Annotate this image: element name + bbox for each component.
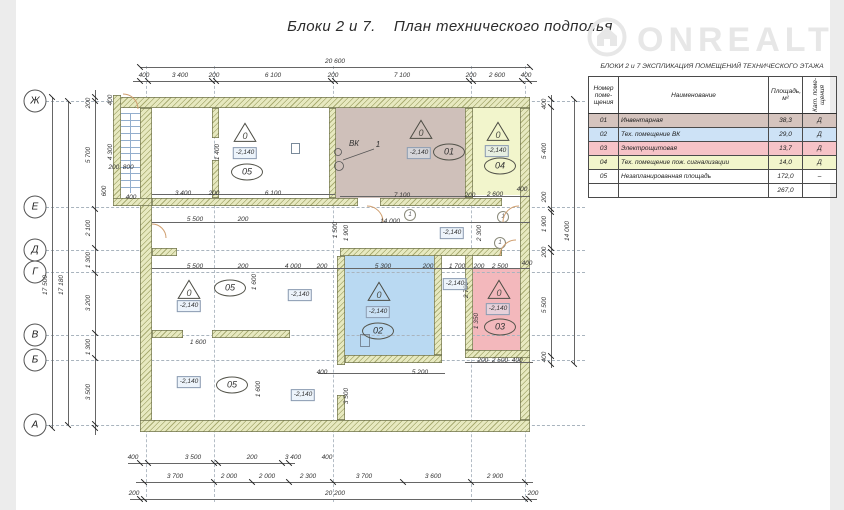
dimension-label: 1 500	[333, 222, 340, 238]
dimension-label: 400	[317, 370, 328, 377]
axis-circle-Ж: Ж	[24, 90, 47, 113]
explication-row-05: 05Незапланированная площадь172,0–	[589, 170, 837, 184]
svg-text:0: 0	[496, 288, 501, 298]
dimension-line	[128, 463, 295, 464]
dimension-label: ВК	[349, 140, 359, 148]
dimension-label: 7 100	[394, 73, 410, 80]
room-name-cell: Тех. помещение пож. сигнализации	[619, 156, 769, 170]
dimension-label: 3 700	[356, 474, 372, 481]
wall-segment	[152, 198, 358, 206]
wall-segment	[113, 97, 530, 108]
dimension-label: 14 000	[565, 221, 572, 241]
wall-segment	[140, 420, 530, 432]
dimension-label: 200	[86, 98, 93, 109]
dimension-label: 1 350	[474, 313, 481, 329]
dimension-label: 1 600	[256, 381, 263, 397]
dimension-line	[574, 99, 575, 364]
dimension-label: 5 500	[187, 217, 203, 224]
dimension-label: 5 400	[542, 143, 549, 159]
wall-segment	[152, 248, 177, 256]
dimension-label: 200	[209, 73, 220, 80]
wall-segment	[345, 355, 442, 363]
category-triangle: 0	[409, 119, 433, 140]
dimension-label: 200	[542, 192, 549, 203]
axis-circle-В: В	[24, 324, 47, 347]
category-triangle: 0	[233, 122, 257, 143]
dimension-label: 5 200	[412, 370, 428, 377]
room-number-tag: 04	[484, 158, 516, 175]
explication-title: БЛОКИ 2 и 7 ЭКСПЛИКАЦИЯ ПОМЕЩЕНИЙ ТЕХНИЧ…	[588, 63, 836, 70]
svg-text:0: 0	[376, 290, 381, 300]
axis-circle-Д: Д	[24, 239, 47, 262]
dimension-label: 200	[129, 491, 140, 498]
dimension-line	[52, 97, 53, 428]
dimension-label: 200	[474, 264, 485, 271]
level-mark: -2,140	[177, 300, 201, 312]
dimension-label: 2 300	[477, 225, 484, 241]
wall-segment	[465, 108, 473, 198]
door-tag: 1	[494, 237, 506, 249]
dimension-label: 200	[528, 491, 539, 498]
dimension-label: 4 300	[108, 144, 115, 160]
dimension-label: 400	[522, 261, 533, 268]
dimension-label: 5 700	[86, 147, 93, 163]
onrealt-logo-icon	[586, 16, 628, 63]
dimension-label: 400	[542, 352, 549, 363]
dimension-label: 3 400	[175, 191, 191, 198]
empty-cell	[803, 184, 837, 198]
level-mark: -2,140	[177, 376, 201, 388]
dimension-label: 600	[102, 186, 109, 197]
dimension-label: 3 200	[86, 295, 93, 311]
dimension-label: 200 2 500 400	[477, 358, 522, 365]
dimension-label: 2 100	[86, 220, 93, 236]
dimension-label: 200	[209, 191, 220, 198]
dimension-line	[140, 67, 530, 68]
dimension-label: 3 500	[185, 455, 201, 462]
dimension-label: 4 000	[285, 264, 301, 271]
level-mark: -2,140	[407, 147, 431, 159]
wall-segment	[212, 108, 219, 138]
dimension-label: 3 500	[86, 384, 93, 400]
room-number-tag: 01	[433, 144, 465, 161]
col-header-category: Кат. поме- щения	[803, 77, 837, 114]
dimension-label: 2 900	[487, 474, 503, 481]
dimension-line	[68, 101, 69, 425]
room-area-cell: 29,0	[769, 128, 803, 142]
room-area-cell: 13,7	[769, 142, 803, 156]
room-area-cell: 38,3	[769, 114, 803, 128]
level-mark: -2,140	[485, 145, 509, 157]
dimension-label: 3 400	[285, 455, 301, 462]
dimension-label: 2 000	[259, 474, 275, 481]
watermark-text: ONREALT	[637, 18, 834, 62]
dimension-line	[152, 222, 530, 223]
dimension-label: 200	[238, 217, 249, 224]
dimension-label: 1 300	[86, 252, 93, 268]
dimension-label: 200	[317, 264, 328, 271]
dimension-label: 5 300	[375, 264, 391, 271]
room-number-cell: 02	[589, 128, 619, 142]
dimension-label: 1 700	[449, 264, 465, 271]
dimension-label: 200 800	[108, 165, 133, 172]
level-mark: -2,140	[440, 227, 464, 239]
explication-row-01: 01Инвентарная38,3Д	[589, 114, 837, 128]
level-mark: -2,140	[291, 389, 315, 401]
dimension-label: 5 500	[542, 297, 549, 313]
category-triangle: 0	[487, 279, 511, 300]
room-number-tag: 05	[216, 377, 248, 394]
level-mark: -2,140	[233, 147, 257, 159]
dimension-label: 2 300	[300, 474, 316, 481]
dimension-label: 200	[542, 247, 549, 258]
dimension-line	[130, 499, 537, 500]
dimension-label: 1	[376, 141, 380, 149]
page-margin-left	[0, 0, 16, 510]
wall-segment	[465, 255, 473, 350]
dimension-line	[95, 90, 96, 435]
level-mark: -2,140	[366, 306, 390, 318]
svg-text:0: 0	[186, 288, 191, 298]
room-area-cell: 172,0	[769, 170, 803, 184]
category-triangle: 0	[367, 281, 391, 302]
dimension-label: 3 600	[425, 474, 441, 481]
axis-circle-Е: Е	[24, 196, 47, 219]
svg-text:0: 0	[495, 130, 500, 140]
dimension-label: 3 500	[344, 388, 351, 404]
room-number-cell: 04	[589, 156, 619, 170]
room-number-cell: 01	[589, 114, 619, 128]
room-number-tag: 05	[231, 164, 263, 181]
dimension-label: 17 180	[59, 275, 66, 295]
category-triangle: 0	[486, 121, 510, 142]
dimension-label: 2 000	[221, 474, 237, 481]
dimension-label: 2 600	[489, 73, 505, 80]
svg-text:0: 0	[242, 131, 247, 141]
wall-segment	[340, 248, 502, 256]
axis-line-Е	[46, 207, 585, 208]
dimension-label: 2 500	[492, 264, 508, 271]
axis-line-Д	[46, 250, 585, 251]
room-category-cell: –	[803, 170, 837, 184]
explication-row-03: 03Электрощитовая13,7Д	[589, 142, 837, 156]
total-area-cell: 267,0	[769, 184, 803, 198]
col-header-name: Наименование	[619, 77, 769, 114]
room-name-cell: Тех. помещение ВК	[619, 128, 769, 142]
explication-row-04: 04Тех. помещение пож. сигнализации14,0Д	[589, 156, 837, 170]
dimension-label: 200	[466, 73, 477, 80]
explication-total-row: 267,0	[589, 184, 837, 198]
room-category-cell: Д	[803, 114, 837, 128]
level-mark: -2,140	[486, 303, 510, 315]
floor-plan-sheet: Блоки 2 и 7. План технического подполья …	[0, 0, 844, 510]
dimension-label: 6 100	[265, 191, 281, 198]
dimension-label: 3 400	[172, 73, 188, 80]
level-mark: -2,140	[288, 289, 312, 301]
room-number-tag: 05	[214, 280, 246, 297]
dimension-label: 7 100	[394, 193, 410, 200]
level-mark: -2,140	[443, 278, 467, 290]
dimension-label: 200	[238, 264, 249, 271]
dimension-label: 1 300	[86, 339, 93, 355]
dimension-label: 5 500	[187, 264, 203, 271]
dimension-label: 1 600	[190, 340, 206, 347]
axis-circle-Б: Б	[24, 349, 47, 372]
dimension-label: 400	[128, 455, 139, 462]
room-category-cell: Д	[803, 156, 837, 170]
dimension-label: 200	[465, 193, 476, 200]
dimension-label: 400	[126, 195, 137, 202]
axis-line-Г	[46, 272, 585, 273]
dimension-label: 6 100	[265, 73, 281, 80]
stair-rail	[130, 113, 131, 193]
dimension-label: 400	[521, 73, 532, 80]
dimension-label: 1 600	[252, 274, 259, 290]
room-category-cell: Д	[803, 142, 837, 156]
dimension-label: 20 200	[325, 491, 345, 498]
dimension-label: 1 900	[344, 225, 351, 241]
dimension-label: 1 900	[542, 216, 549, 232]
door-arc	[152, 224, 166, 238]
category-triangle: 0	[177, 279, 201, 300]
watermark: ONREALT	[586, 16, 834, 63]
dimension-label: 200	[247, 455, 258, 462]
dimension-label: 200	[423, 264, 434, 271]
room-category-cell: Д	[803, 128, 837, 142]
dimension-label: 20 600	[325, 59, 345, 66]
empty-cell	[619, 184, 769, 198]
wall-segment	[212, 330, 290, 338]
dimension-label: 400	[322, 455, 333, 462]
dimension-label: 17 500	[43, 275, 50, 295]
room-name-cell: Инвентарная	[619, 114, 769, 128]
dimension-label: 2 600	[487, 192, 503, 199]
dimension-label: 200	[328, 73, 339, 80]
wall-segment	[152, 330, 183, 338]
room-number-cell: 05	[589, 170, 619, 184]
dimension-label: 400	[517, 187, 528, 194]
wall-segment	[140, 108, 152, 432]
room-number-tag: 02	[362, 323, 394, 340]
equipment-rect	[291, 143, 300, 154]
dimension-label: 400	[139, 73, 150, 80]
door-tag: 1	[404, 209, 416, 221]
wall-segment	[329, 108, 336, 198]
room-name-cell: Электрощитовая	[619, 142, 769, 156]
explication-table: Номер поме- щения Наименование Площадь, …	[588, 76, 837, 198]
col-header-area: Площадь, м²	[769, 77, 803, 114]
dimension-label: 3 700	[167, 474, 183, 481]
room-area-cell: 14,0	[769, 156, 803, 170]
explication-row-02: 02Тех. помещение ВК29,0Д	[589, 128, 837, 142]
dimension-label: 400	[542, 99, 549, 110]
wall-segment	[434, 255, 442, 355]
empty-cell	[589, 184, 619, 198]
wall-segment	[337, 256, 345, 365]
dimension-line	[551, 95, 552, 368]
col-header-room-number: Номер поме- щения	[589, 77, 619, 114]
dimension-label: 14 000	[380, 219, 400, 226]
dimension-label: 1 400	[215, 144, 222, 160]
room-number-cell: 03	[589, 142, 619, 156]
dimension-label: 400	[108, 95, 115, 106]
axis-circle-А: А	[24, 414, 47, 437]
room-number-tag: 03	[484, 319, 516, 336]
room-name-cell: Незапланированная площадь	[619, 170, 769, 184]
svg-text:0: 0	[418, 128, 423, 138]
